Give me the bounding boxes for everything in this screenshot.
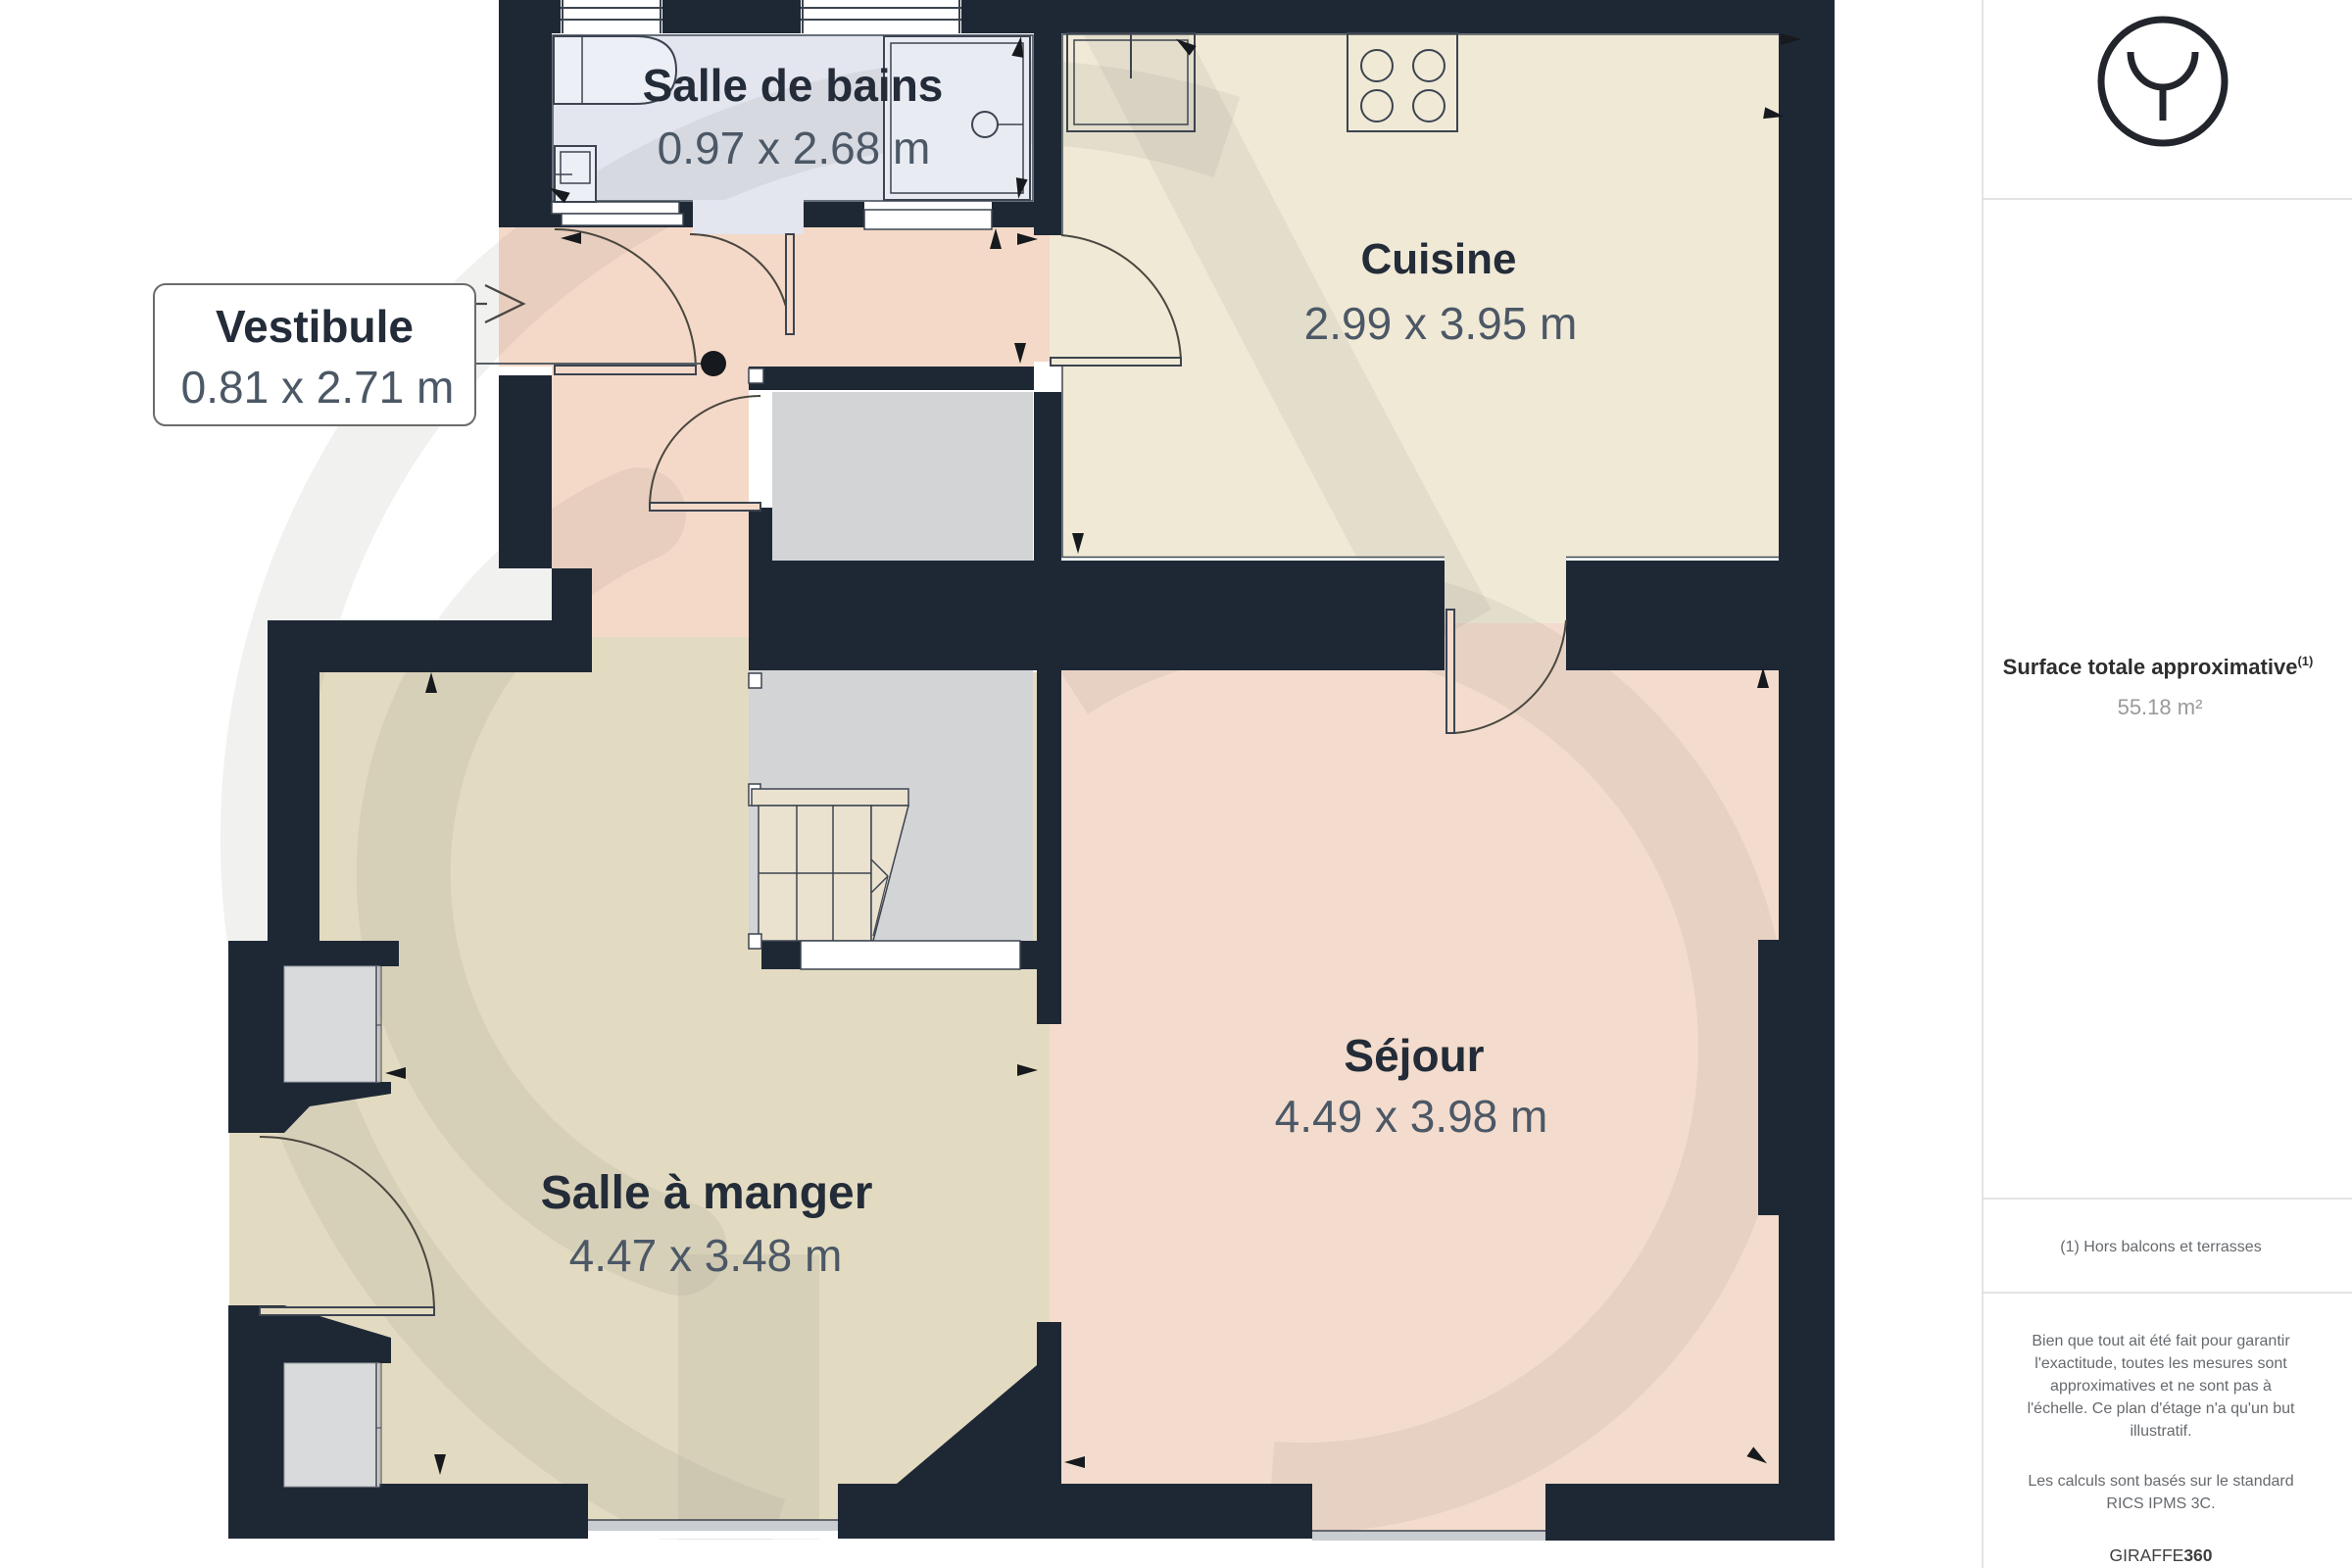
svg-text:Salle à manger: Salle à manger (541, 1167, 873, 1219)
svg-text:4.47 x 3.48 m: 4.47 x 3.48 m (569, 1230, 843, 1281)
svg-text:Bien que tout ait été fait pou: Bien que tout ait été fait pour garantir (2032, 1333, 2290, 1349)
svg-text:l'exactitude, toutes les mesur: l'exactitude, toutes les mesures sont (2034, 1355, 2287, 1372)
svg-text:0.97 x 2.68 m: 0.97 x 2.68 m (658, 122, 931, 173)
svg-text:RICS IPMS 3C.: RICS IPMS 3C. (2106, 1495, 2215, 1512)
svg-text:Cuisine: Cuisine (1361, 235, 1517, 283)
svg-text:2.99 x 3.95 m: 2.99 x 3.95 m (1304, 298, 1578, 349)
svg-text:Séjour: Séjour (1344, 1030, 1484, 1081)
svg-text:Les calculs sont basés sur le: Les calculs sont basés sur le standard (2028, 1473, 2293, 1490)
svg-text:Surface totale approximative(1: Surface totale approximative(1) (2003, 654, 2314, 679)
svg-text:approximatives et ne sont pas: approximatives et ne sont pas à (2050, 1378, 2272, 1395)
svg-text:4.49 x 3.98 m: 4.49 x 3.98 m (1275, 1091, 1548, 1142)
svg-text:Vestibule: Vestibule (216, 301, 414, 352)
svg-text:(1) Hors balcons et terrasses: (1) Hors balcons et terrasses (2060, 1239, 2261, 1255)
svg-text:0.81 x 2.71 m: 0.81 x 2.71 m (181, 362, 455, 413)
svg-text:GIRAFFE360: GIRAFFE360 (2109, 1545, 2212, 1565)
svg-text:Salle de bains: Salle de bains (643, 60, 944, 111)
svg-text:55.18 m²: 55.18 m² (2118, 695, 2203, 719)
svg-text:l'échelle. Ce plan d'étage n'a: l'échelle. Ce plan d'étage n'a qu'un but (2028, 1400, 2295, 1417)
svg-text:illustratif.: illustratif. (2130, 1423, 2191, 1440)
